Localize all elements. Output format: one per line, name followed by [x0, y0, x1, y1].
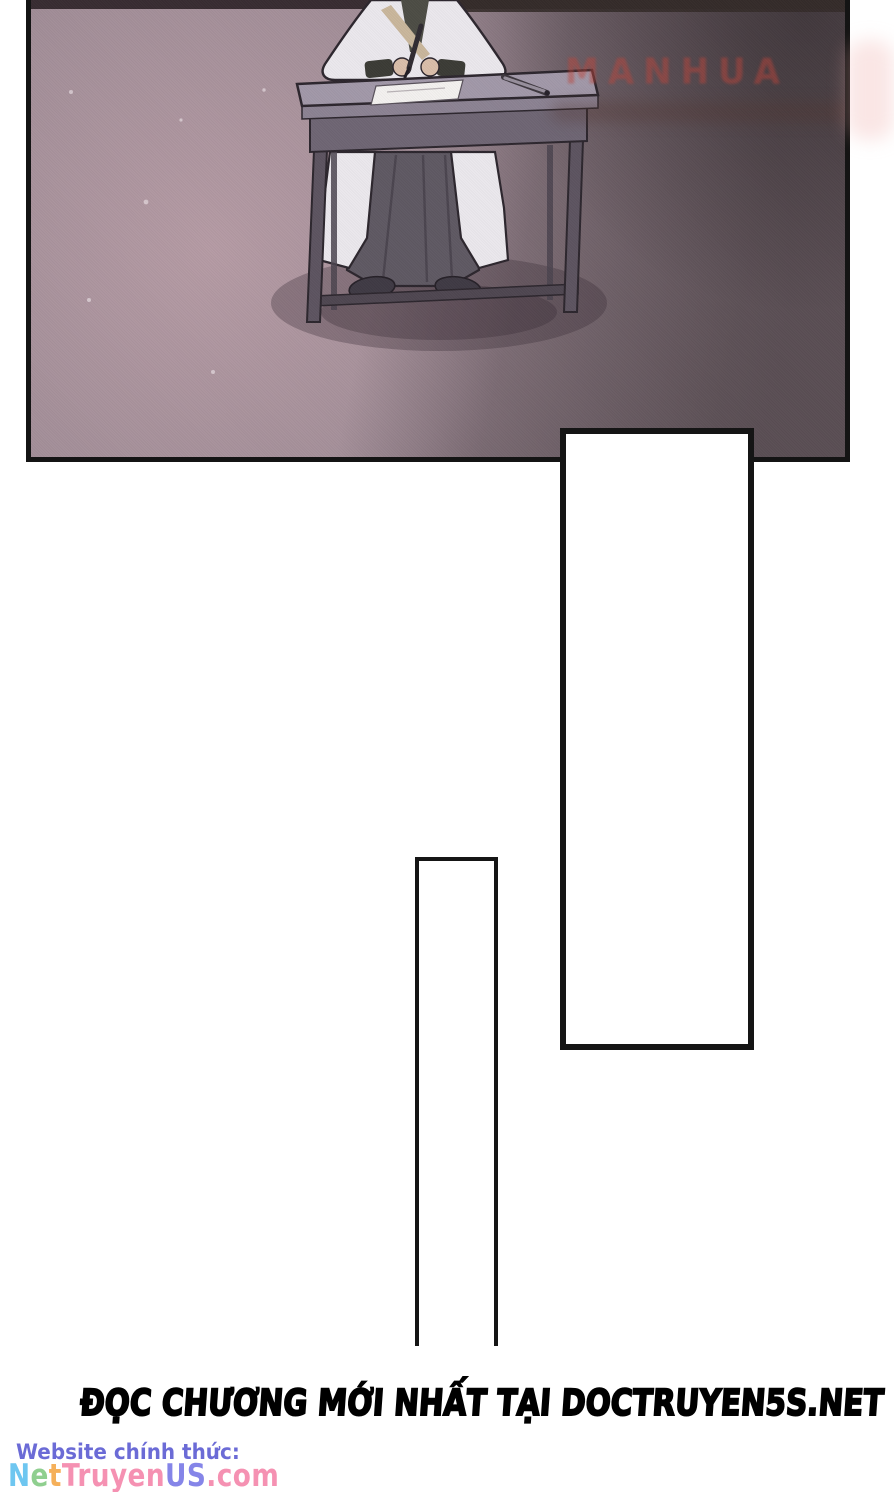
site-letter: t [49, 1458, 62, 1492]
site-letter: u [91, 1458, 110, 1492]
left-cuff [364, 59, 394, 79]
artwork-panel: MANHUA [26, 0, 850, 462]
site-letter: e [30, 1458, 48, 1492]
empty-panel-frame-tall [560, 428, 754, 1050]
spare-pen-tip [544, 90, 549, 95]
floor-sparkles [69, 88, 266, 374]
manga-page: MANHUA ĐỌC CHƯƠNG MỚI NHẤT TẠI DOCTRUYEN… [0, 0, 894, 1492]
site-letter: c [217, 1458, 233, 1492]
watermark-text: MANHUA [565, 51, 789, 93]
site-letter: . [206, 1458, 216, 1492]
site-letter: y [110, 1458, 128, 1492]
site-letter: S [187, 1458, 206, 1492]
empty-panel-frame-narrow [415, 857, 498, 1346]
site-letter: e [128, 1458, 146, 1492]
site-letter: N [8, 1458, 30, 1492]
site-letter: n [146, 1458, 165, 1492]
site-letter: T [62, 1458, 78, 1492]
watermark-smudge [551, 102, 850, 122]
site-link: NetTruyenUS.com [8, 1458, 279, 1492]
site-letter: r [77, 1458, 90, 1492]
site-letter: U [165, 1458, 187, 1492]
right-hand [421, 58, 439, 76]
desk-rear-leg-left [331, 150, 337, 310]
site-letter: m [251, 1458, 279, 1492]
desk-rear-leg-right [547, 145, 553, 300]
watermark-bleed-outside [846, 40, 894, 140]
promo-text: ĐỌC CHƯƠNG MỚI NHẤT TẠI DOCTRUYEN5S.NET [79, 1383, 885, 1424]
character-figure [323, 0, 506, 80]
site-letter: o [233, 1458, 252, 1492]
